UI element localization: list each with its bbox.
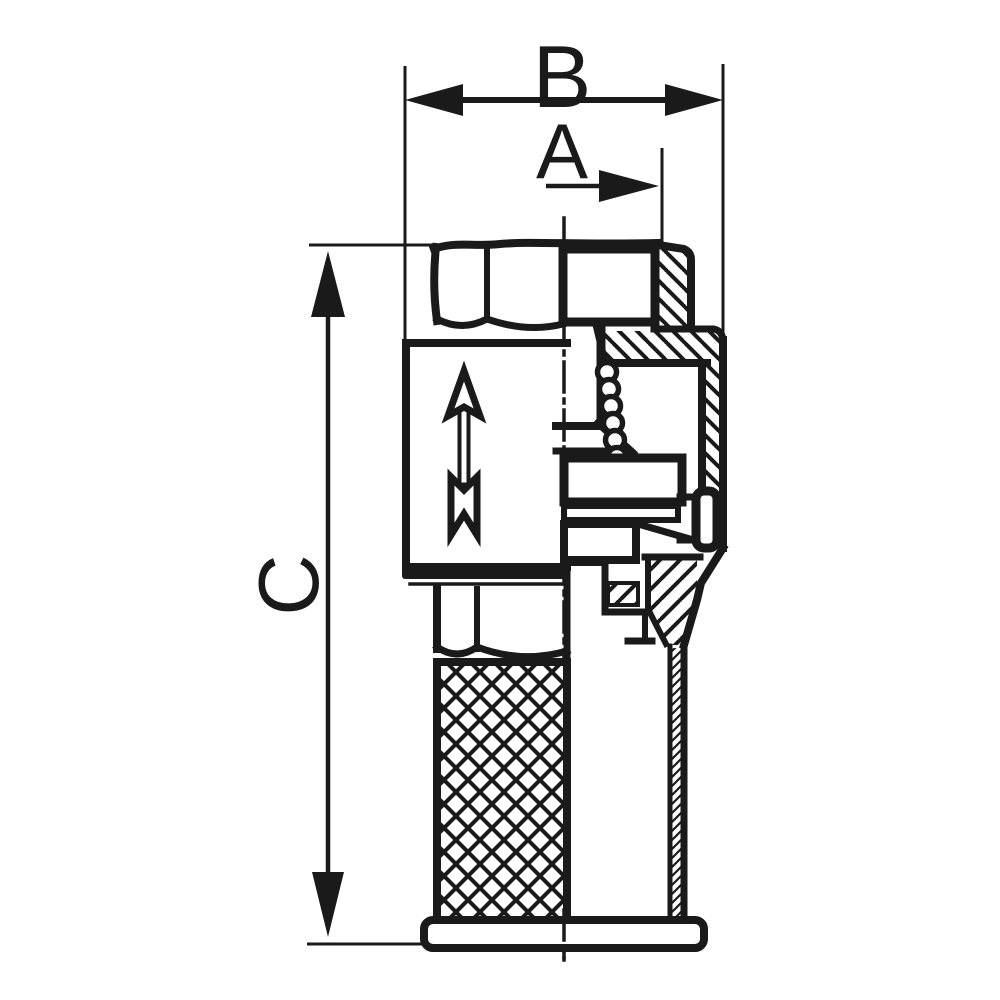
technical-drawing-canvas: B A C [0, 0, 1000, 1000]
flange-hatch [598, 331, 723, 363]
body-bottom-flange [402, 567, 568, 579]
valve-part [400, 218, 730, 960]
cap-section-hatch [654, 246, 691, 326]
arrowhead-b-left [405, 84, 463, 116]
cap-left-edge [434, 247, 437, 321]
dimension-a: A [536, 107, 662, 242]
strainer-mesh [437, 662, 567, 922]
poppet-plate [564, 506, 678, 520]
arrowhead-b-right [665, 84, 723, 116]
arrowhead-a [599, 170, 659, 202]
valve-sectional-drawing: B A C [0, 0, 1000, 1000]
outlet-tube [670, 646, 684, 920]
seat-seal [696, 491, 717, 548]
poppet-disc [564, 458, 682, 502]
dimension-a-label: A [536, 107, 588, 195]
arrowhead-c-bottom [312, 872, 344, 937]
poppet-guide [564, 524, 636, 560]
arrowhead-c-top [311, 251, 345, 317]
small-seal-section [608, 583, 638, 605]
cap-section-bore [563, 249, 655, 322]
dimension-c-label: C [242, 554, 337, 615]
